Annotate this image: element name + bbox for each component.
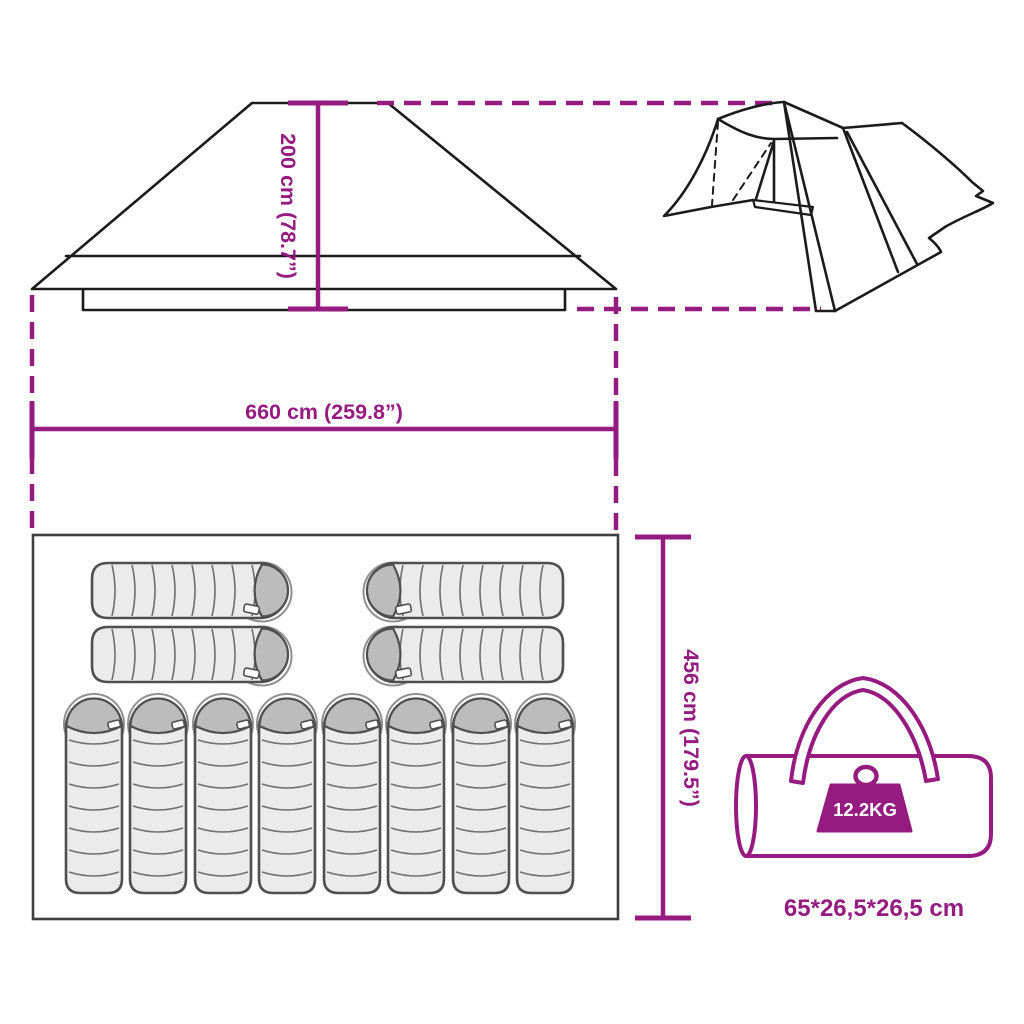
depth-dimension-label: 456 cm (179.5”) [679,649,703,807]
bag-size-label: 65*26,5*26,5 cm [784,895,964,922]
depth-dimension: 456 cm (179.5”) [635,537,703,918]
sleeping-bag-vertical [64,694,124,893]
sleeping-bag-vertical [322,694,382,893]
carry-bag-end [736,756,756,856]
weight-ring [856,767,877,785]
sleeping-bag-horizontal [364,627,564,686]
connector-lines [32,103,821,533]
floor-plan [33,535,618,919]
width-dimension-label: 660 cm (259.8”) [245,400,403,424]
sleeping-bag-vertical [515,694,575,893]
sleeping-bag-vertical [128,694,188,893]
sleeping-bag-horizontal [364,563,564,622]
height-dimension-label: 200 cm (78.7”) [276,133,300,279]
tent-3d-illustration [664,102,993,311]
sleeping-bag-vertical [386,694,446,893]
width-dimension: 660 cm (259.8”) [32,400,616,459]
sleeping-bag-vertical [193,694,253,893]
sleeping-bag-horizontal [92,563,292,622]
weight-label: 12.2KG [833,799,897,820]
product-dimension-diagram: 200 cm (78.7”) 660 cm (259.8”) 456 cm (1… [0,0,1024,1024]
sleeping-bag-horizontal [92,627,292,686]
carry-bag: 12.2KG 65*26,5*26,5 cm [736,678,991,922]
tent-side-view [32,103,616,310]
sleeping-bag-vertical [257,694,317,893]
sleeping-bag-vertical [451,694,511,893]
height-dimension: 200 cm (78.7”) [276,103,348,309]
